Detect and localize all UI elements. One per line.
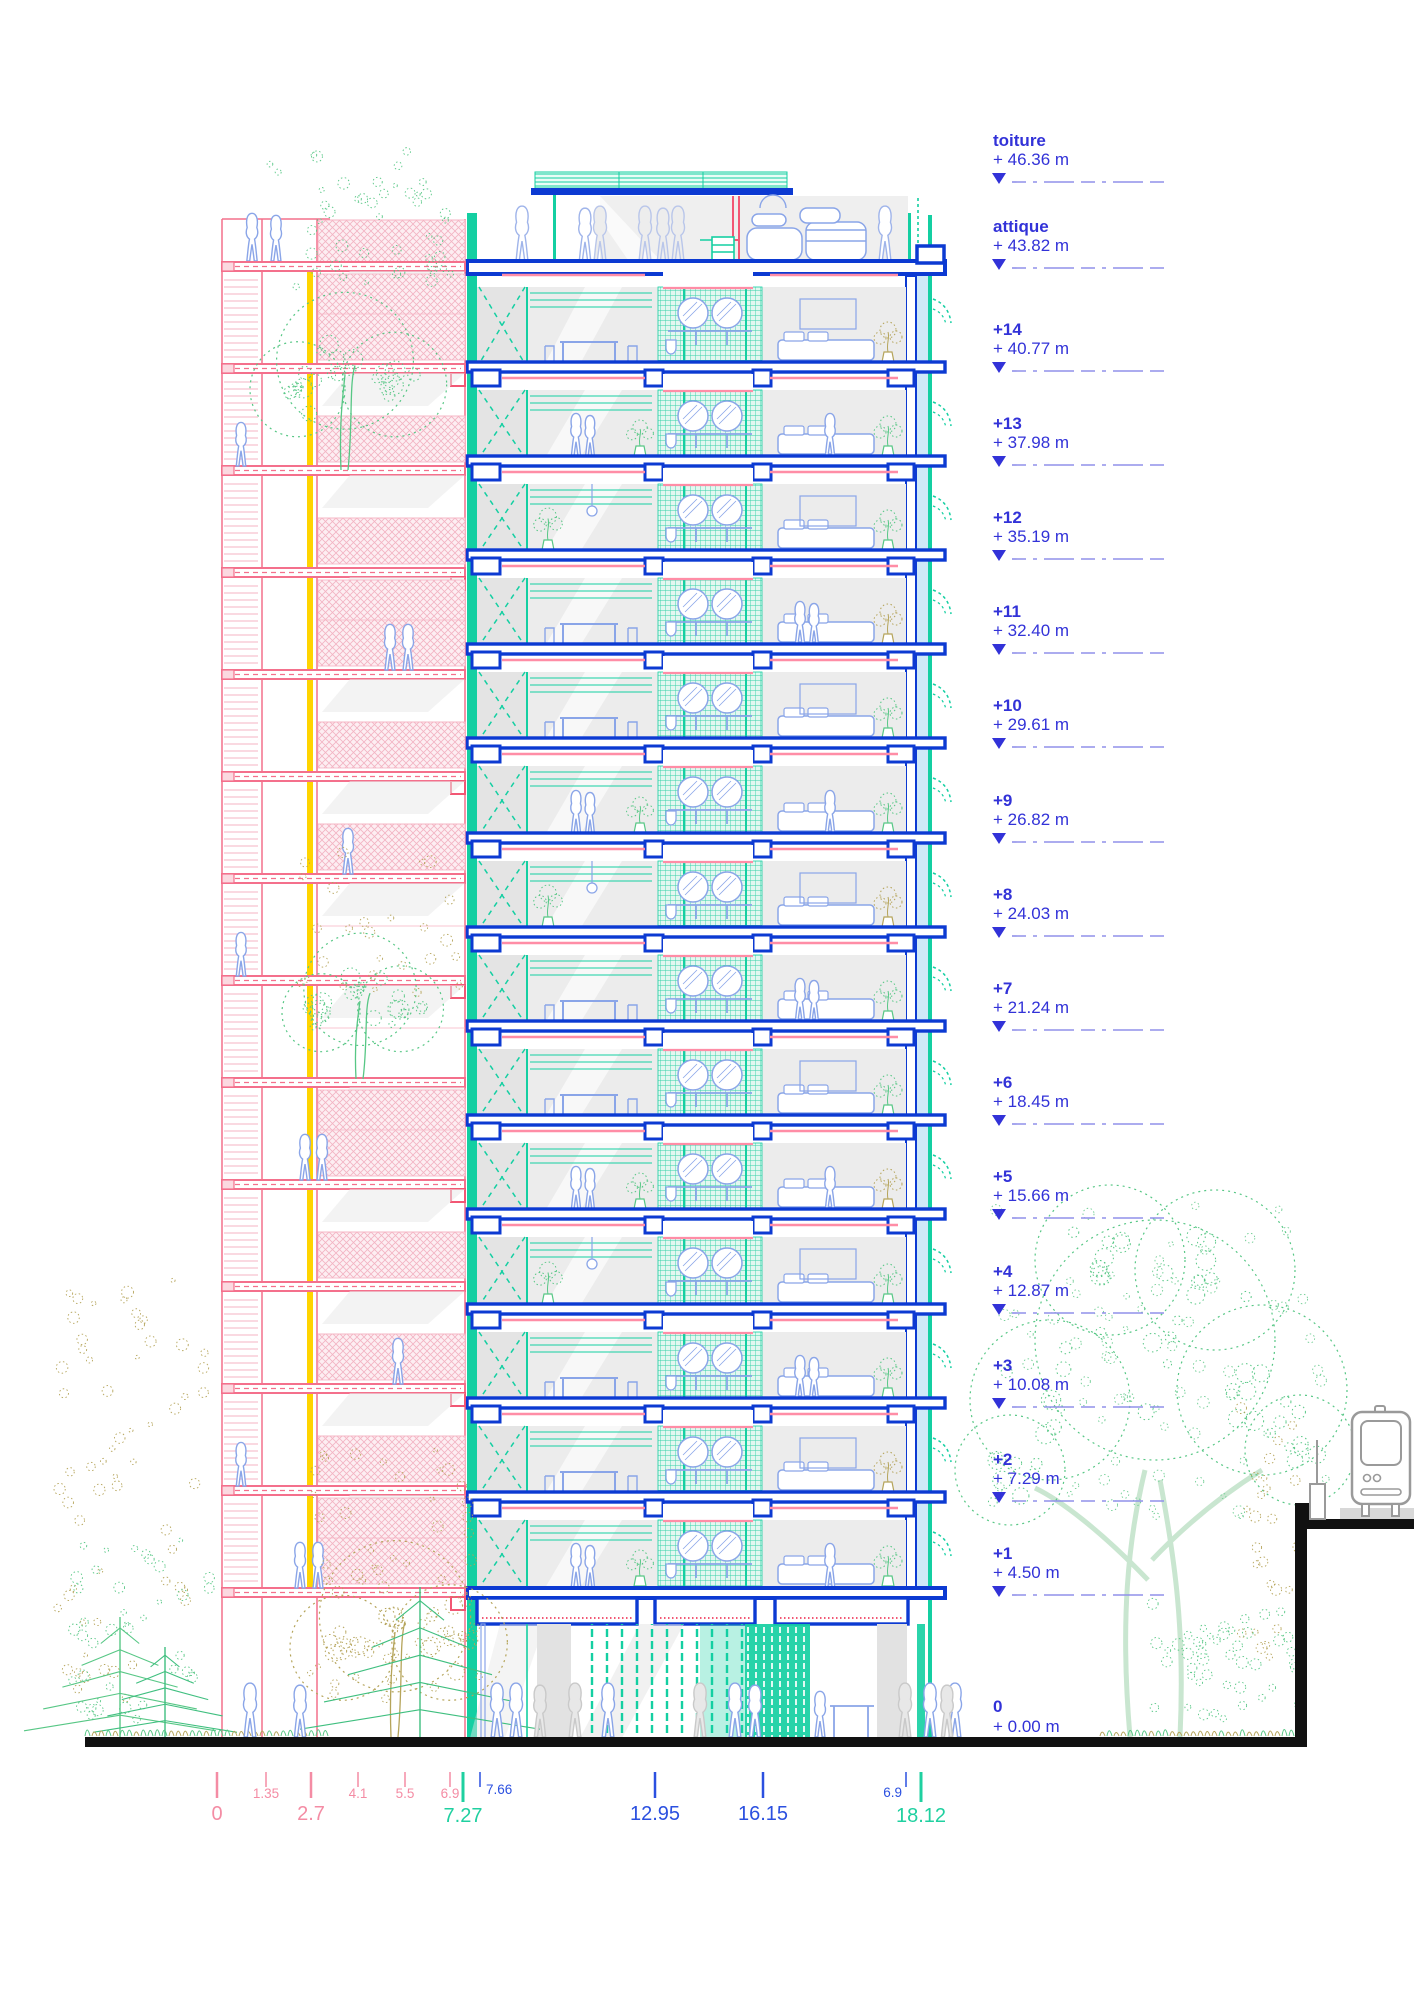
level-annotation: +9+ 26.82 m [992, 791, 1168, 844]
dimension-label: 6.9 [883, 1785, 902, 1800]
level-elevation: + 46.36 m [993, 150, 1069, 169]
dimension-label: 1.35 [253, 1786, 279, 1801]
level-annotation: +8+ 24.03 m [992, 885, 1168, 938]
storey-+5 [467, 1127, 951, 1233]
level-annotation: +10+ 29.61 m [992, 696, 1168, 749]
dimension-label: 18.12 [896, 1805, 946, 1827]
storey-+8 [467, 845, 951, 951]
level-elevation: + 12.87 m [993, 1281, 1069, 1300]
storey-+14 [467, 271, 951, 386]
level-elevation: + 37.98 m [993, 433, 1069, 452]
dimension-label: 4.1 [349, 1786, 368, 1801]
level-elevation: + 21.24 m [993, 998, 1069, 1017]
storey-+7 [467, 939, 951, 1045]
level-elevation: + 10.08 m [993, 1375, 1069, 1394]
level-name: toiture [993, 131, 1046, 150]
computer-terminal [1310, 1406, 1410, 1519]
dimension-label: 7.66 [486, 1782, 512, 1797]
dimension-tick: 6.9 [883, 1772, 906, 1800]
dimension-tick: 0 [211, 1772, 222, 1825]
dimension-label: 6.9 [441, 1786, 460, 1801]
level-elevation: + 18.45 m [993, 1092, 1069, 1111]
dimension-label: 0 [211, 1803, 222, 1825]
level-elevation: + 35.19 m [993, 527, 1069, 546]
storey-+3 [467, 1316, 951, 1422]
level-annotation: +5+ 15.66 m [992, 1167, 1168, 1220]
dimension-label: 5.5 [396, 1786, 415, 1801]
level-annotation: +12+ 35.19 m [992, 508, 1168, 561]
balcony-tower-section [222, 213, 465, 1738]
level-annotation: toiture+ 46.36 m [992, 131, 1168, 184]
level-elevation: + 24.03 m [993, 904, 1069, 923]
dimension-tick: 12.95 [630, 1772, 680, 1825]
ground-people [243, 1683, 961, 1737]
level-name: +7 [993, 979, 1012, 998]
dimension-label: 12.95 [630, 1803, 680, 1825]
dimension-tick: 5.5 [396, 1772, 415, 1801]
level-elevation: + 7.29 m [993, 1469, 1060, 1488]
dimension-label: 2.7 [297, 1803, 325, 1825]
level-name: attique [993, 217, 1049, 236]
dimension-tick: 4.1 [349, 1772, 368, 1801]
level-name: +8 [993, 885, 1012, 904]
level-elevation: + 40.77 m [993, 339, 1069, 358]
storey-+13 [467, 374, 951, 480]
level-annotation: +13+ 37.98 m [992, 414, 1168, 467]
storey-+10 [467, 656, 951, 762]
dimension-tick: 16.15 [738, 1772, 788, 1825]
level-annotation: +7+ 21.24 m [992, 979, 1168, 1032]
level-name: +10 [993, 696, 1022, 715]
level-name: +9 [993, 791, 1012, 810]
level-elevation: + 32.40 m [993, 621, 1069, 640]
level-name: +14 [993, 320, 1022, 339]
dimension-label: 7.27 [444, 1805, 483, 1827]
level-name: +6 [993, 1073, 1012, 1092]
level-annotation: attique+ 43.82 m [992, 217, 1168, 270]
storey-+4 [467, 1221, 951, 1328]
section-canvas: toiture+ 46.36 mattique+ 43.82 m+14+ 40.… [0, 0, 1414, 2000]
level-name: +3 [993, 1356, 1012, 1375]
level-elevation: + 29.61 m [993, 715, 1069, 734]
storey-+9 [467, 750, 951, 857]
level-name: +11 [993, 602, 1021, 621]
level-annotation: +4+ 12.87 m [992, 1262, 1168, 1315]
dimension-tick: 18.12 [896, 1772, 946, 1827]
dimension-scale: 01.352.74.15.56.97.277.6612.9516.156.918… [211, 1772, 946, 1827]
level-elevation: + 4.50 m [993, 1563, 1060, 1582]
level-annotation: +11+ 32.40 m [992, 602, 1168, 655]
level-name: +5 [993, 1167, 1012, 1186]
level-elevation: + 15.66 m [993, 1186, 1069, 1205]
architectural-section-sheet: toiture+ 46.36 mattique+ 43.82 m+14+ 40.… [0, 0, 1414, 2000]
level-annotation: 0+ 0.00 m [993, 1697, 1060, 1736]
level-name: +2 [993, 1450, 1012, 1469]
level-name: +1 [993, 1544, 1012, 1563]
dimension-tick: 6.9 [441, 1772, 460, 1801]
level-elevation: + 26.82 m [993, 810, 1069, 829]
level-annotation: +14+ 40.77 m [992, 320, 1168, 373]
level-annotation: +6+ 18.45 m [992, 1073, 1168, 1126]
dimension-tick: 1.35 [253, 1772, 279, 1801]
storey-+12 [467, 468, 951, 574]
storey-+1 [477, 1504, 951, 1588]
level-elevation: + 43.82 m [993, 236, 1069, 255]
level-elevation: + 0.00 m [993, 1717, 1060, 1736]
dimension-tick: 7.66 [480, 1772, 512, 1797]
level-name: +12 [993, 508, 1022, 527]
level-name: 0 [993, 1697, 1002, 1716]
level-name: +13 [993, 414, 1022, 433]
dimension-tick: 2.7 [297, 1772, 325, 1825]
storey-+6 [467, 1033, 951, 1139]
level-name: +4 [993, 1262, 1013, 1281]
storey-+2 [467, 1410, 951, 1516]
storey-+11 [467, 562, 951, 668]
dimension-label: 16.15 [738, 1803, 788, 1825]
main-tower-section [467, 172, 951, 1738]
